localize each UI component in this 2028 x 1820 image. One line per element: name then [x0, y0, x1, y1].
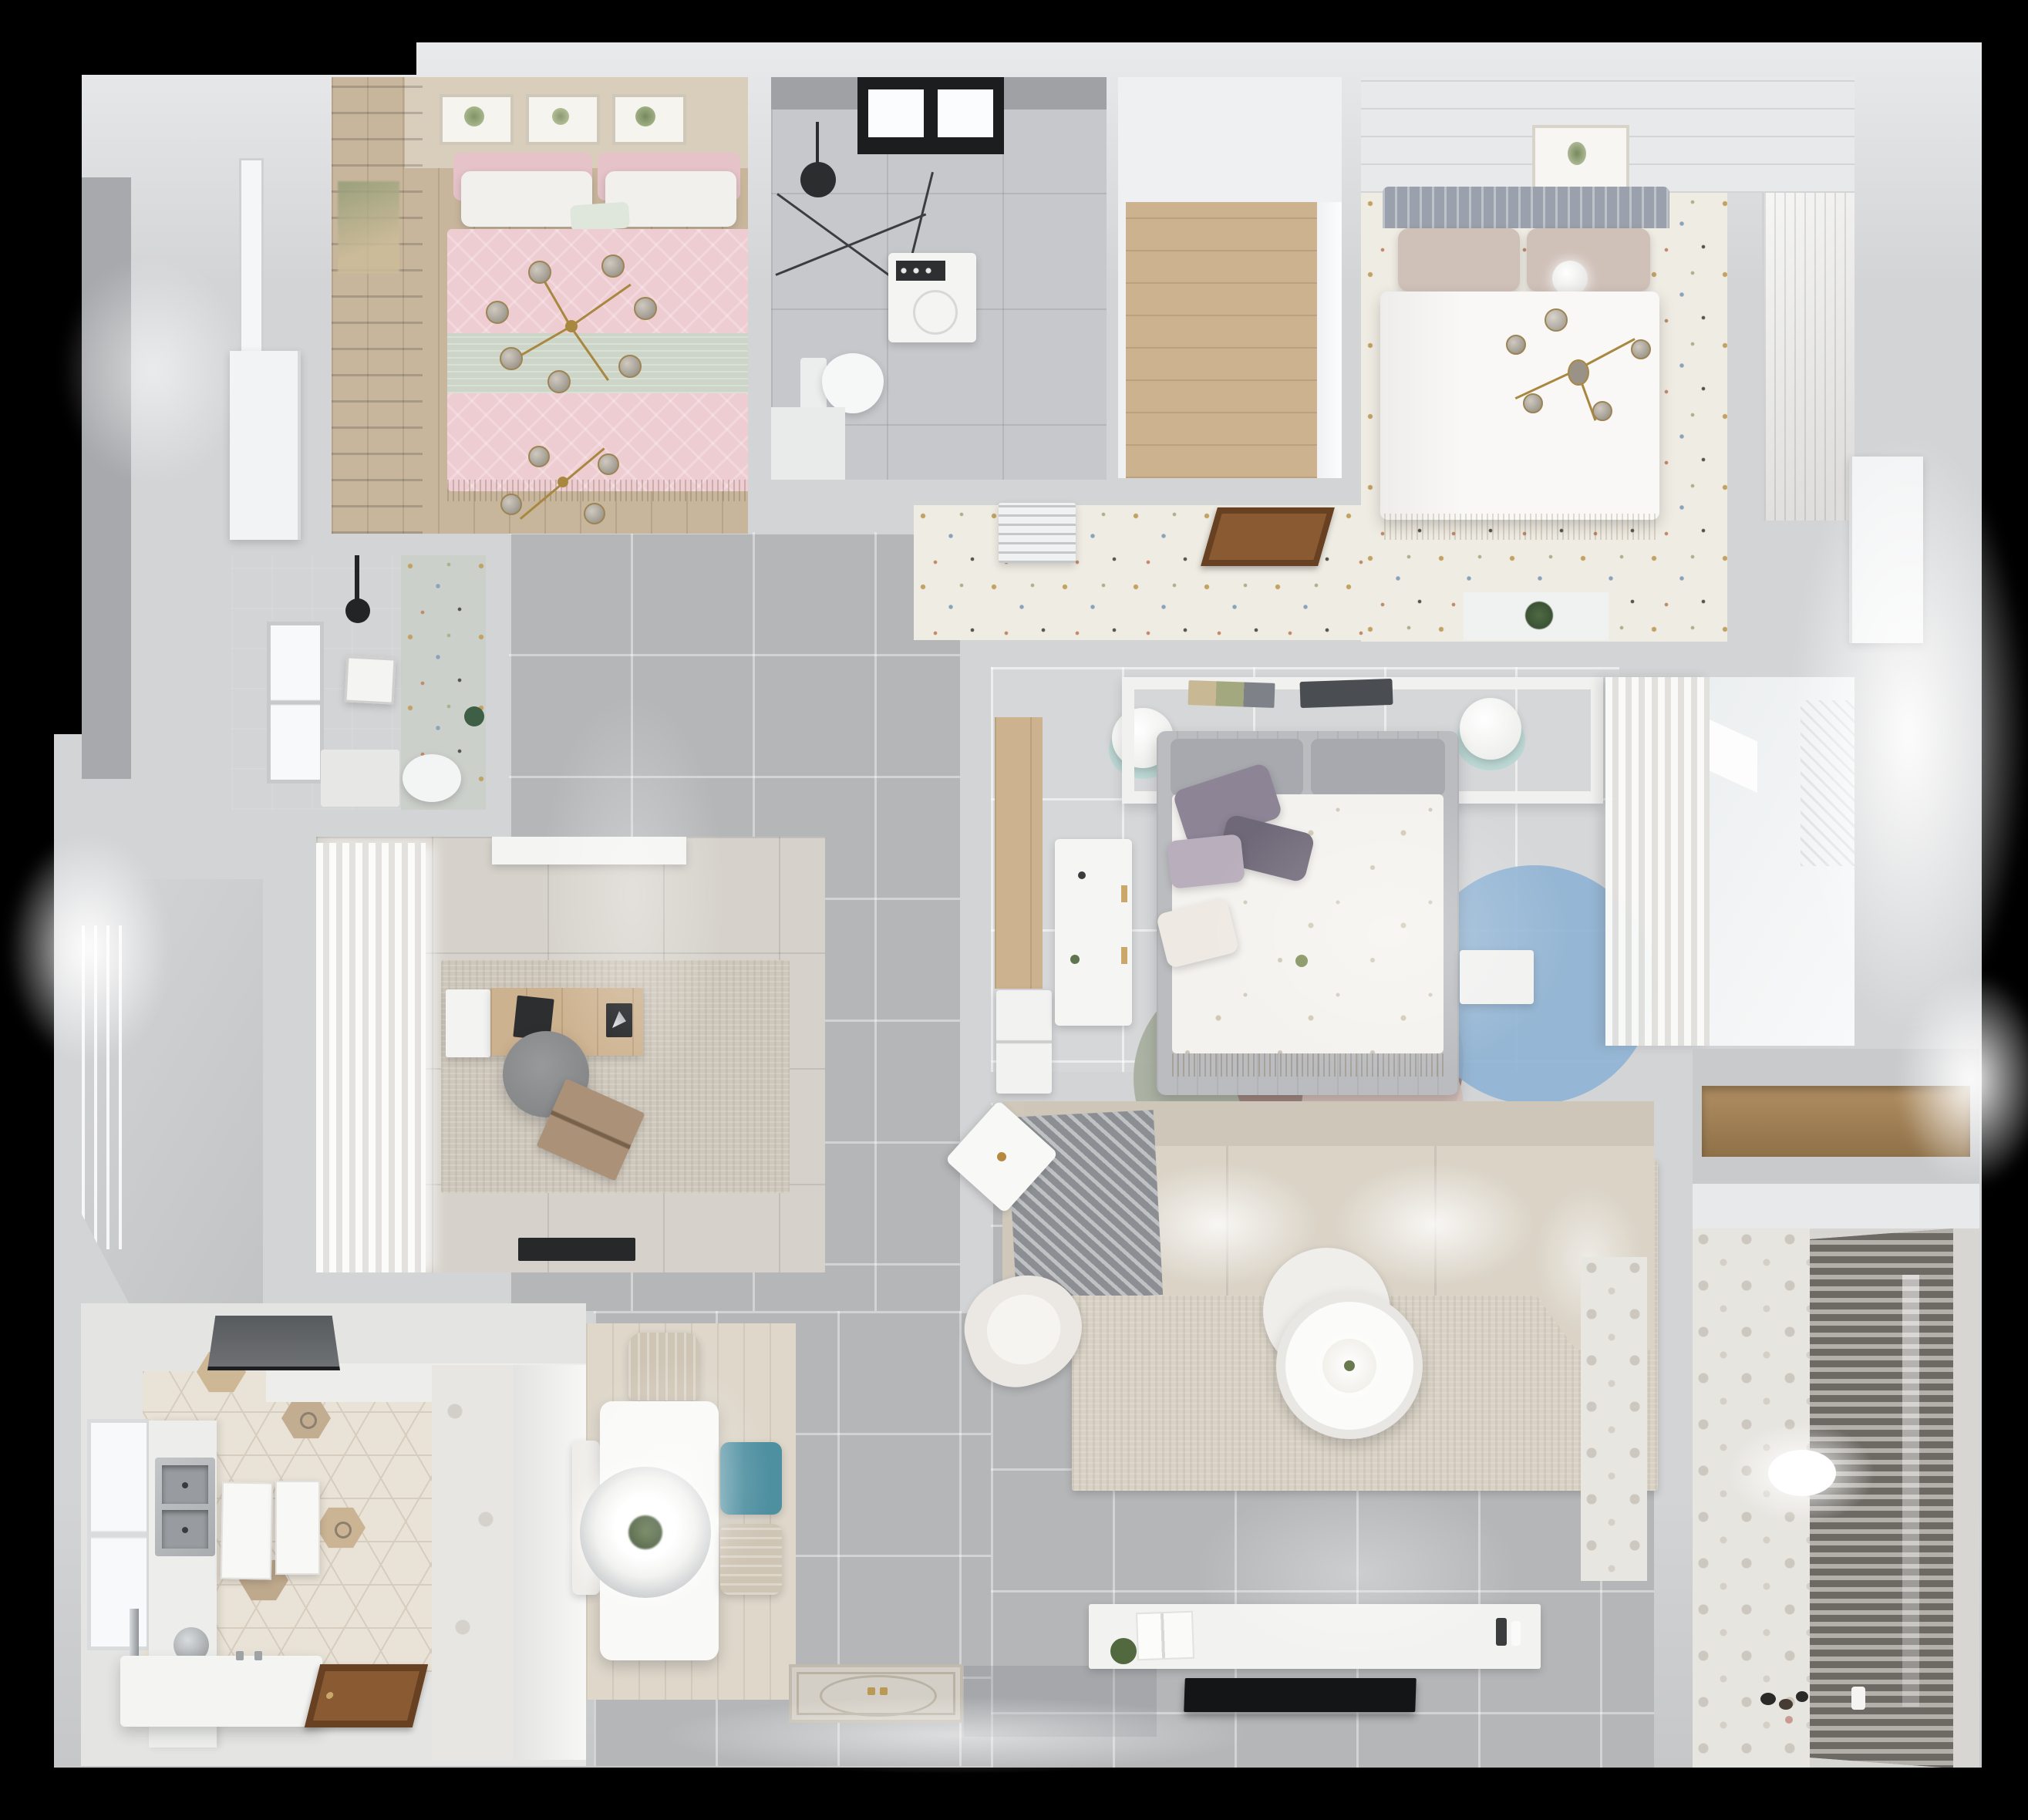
oval-lamp	[1768, 1450, 1836, 1496]
chandelier-bulb	[528, 446, 550, 467]
tv-panel	[1184, 1678, 1417, 1712]
plant	[1525, 602, 1553, 629]
white-panel	[221, 1481, 273, 1579]
room-bathroom-top	[771, 77, 1107, 480]
shower-pipe	[355, 555, 359, 603]
closet-corner-panel	[1710, 720, 1757, 793]
chandelier-bulb	[598, 453, 619, 475]
chandelier-bulb	[500, 494, 522, 515]
room-balcony	[1693, 1184, 1979, 1768]
plant-centerpiece	[628, 1515, 662, 1549]
master-bed	[1157, 731, 1459, 1095]
patterned-tile-wall	[1693, 1228, 1810, 1768]
dining-chair-teal	[720, 1442, 782, 1515]
louver-blinds	[1810, 1228, 1953, 1768]
chandelier-bulb	[1523, 393, 1543, 413]
shower-arm	[816, 122, 819, 167]
slatted-headboard	[1383, 187, 1669, 228]
olive-accent	[1295, 955, 1308, 967]
louver-stripes	[1801, 700, 1855, 866]
gray-pillow	[1311, 739, 1445, 796]
sheer-curtain-master	[1605, 677, 1710, 1046]
toilet-bowl	[403, 754, 461, 802]
walk-in-closet	[1710, 677, 1855, 1046]
wall-band	[1693, 1184, 1979, 1228]
toy-pink	[1785, 1716, 1793, 1724]
dining-chair-beige	[628, 1333, 699, 1400]
room-bedroom-white	[1361, 77, 1855, 642]
double-steel-sink	[155, 1458, 215, 1556]
white-desk	[1055, 839, 1132, 1026]
tv-console	[1089, 1604, 1541, 1669]
chandelier-hub	[558, 477, 568, 487]
gold-handle	[1121, 885, 1127, 902]
black-notch-left	[54, 75, 82, 734]
armchair-seat	[978, 1285, 1070, 1373]
window	[267, 622, 324, 784]
shoe	[1760, 1693, 1776, 1705]
floorplan-render	[0, 0, 2028, 1820]
valance	[492, 837, 686, 865]
white-door-leaf	[230, 351, 301, 540]
sink-basin	[162, 1510, 208, 1549]
bed-fringe	[1172, 1053, 1444, 1077]
chandelier-bulb	[1545, 308, 1568, 332]
table-plant	[1344, 1360, 1355, 1371]
plant-pot	[1110, 1638, 1137, 1664]
plant	[464, 706, 484, 726]
tap	[236, 1651, 244, 1660]
chandelier-bulb	[1631, 339, 1651, 359]
art-plant-sketch	[635, 106, 655, 126]
mat-tassel-gold	[867, 1687, 875, 1695]
chandelier-bulb	[634, 297, 657, 320]
white-panel	[275, 1481, 320, 1575]
chandelier-bulb	[486, 301, 509, 324]
room-bathroom-dark	[231, 555, 486, 810]
plant-ledge	[1464, 592, 1609, 640]
blanket-fringe	[1384, 514, 1656, 540]
vanity	[321, 750, 399, 807]
pantry-column	[432, 1365, 514, 1760]
outer-shadow-band	[82, 177, 131, 779]
gold-sputnik-chandelier	[486, 254, 655, 401]
art-frame	[344, 656, 396, 704]
wall-art-frame	[526, 94, 600, 145]
bottle-dark	[1496, 1618, 1507, 1646]
sofa-seam	[1434, 1146, 1437, 1296]
chandelier-hub	[1568, 359, 1589, 386]
gold-sputnik-chandelier	[1500, 308, 1654, 432]
shower-head	[345, 598, 370, 623]
open-wood-door	[1201, 507, 1335, 566]
desk-plant	[1070, 955, 1080, 964]
balcony-storage-niche	[1693, 1049, 1979, 1184]
gold-handle	[1121, 947, 1127, 964]
art-plant-sketch	[552, 108, 569, 125]
garden-glimpse	[338, 181, 399, 274]
side-platform	[82, 879, 263, 1303]
chandelier-bulb	[547, 370, 571, 393]
shoe	[1779, 1699, 1793, 1710]
table-center	[1322, 1339, 1376, 1393]
decor-frames	[1136, 1611, 1194, 1661]
books	[1187, 680, 1275, 708]
bottle-white	[1851, 1687, 1865, 1710]
chandelier-bulb	[601, 254, 625, 278]
louver-wardrobe	[1762, 193, 1855, 521]
black-doormat	[518, 1238, 635, 1261]
roman-shade-curtain	[332, 77, 423, 534]
hex-motif	[335, 1522, 352, 1539]
room-storage	[1118, 77, 1342, 478]
chandelier-hub	[565, 320, 578, 332]
window-pane	[938, 89, 993, 137]
island-counter	[120, 1656, 322, 1727]
dark-folio	[1299, 679, 1393, 708]
wall-art-frame	[440, 94, 514, 145]
desk-item-dark	[1078, 871, 1086, 879]
window-pane	[868, 89, 924, 137]
open-door-white	[1849, 457, 1923, 643]
chandelier-arm	[520, 482, 564, 520]
book-feather	[612, 1011, 626, 1028]
round-coffee-table	[1257, 1248, 1427, 1437]
room-study	[316, 837, 825, 1272]
radiator-vent	[999, 503, 1076, 563]
blind-light-slit	[1902, 1275, 1919, 1707]
chandelier-bulb	[618, 355, 642, 378]
chandelier-arm	[570, 284, 632, 328]
sofa-seam	[1226, 1146, 1228, 1296]
storage-shelf-wood	[1702, 1086, 1970, 1157]
dark-window	[857, 77, 1004, 154]
wood-plank-floor	[1126, 202, 1317, 478]
drain	[182, 1482, 188, 1488]
control-panel	[896, 261, 945, 281]
wall-art-frame	[612, 94, 686, 145]
chandelier-bulb	[528, 261, 551, 284]
chandelier-bulb	[1506, 335, 1526, 355]
chandelier-bulb	[584, 503, 605, 524]
washer-door-ring	[913, 290, 958, 335]
tap	[254, 1651, 262, 1660]
chandelier-bulb	[500, 347, 523, 370]
shower-head	[800, 162, 836, 197]
ledge	[771, 407, 845, 480]
room-bedroom-pink	[332, 77, 748, 534]
dresser	[996, 990, 1052, 1094]
railing	[82, 925, 128, 1249]
art-frame	[1532, 125, 1629, 191]
sink-basin	[162, 1465, 208, 1504]
drain	[182, 1527, 188, 1533]
desk-cabinet	[446, 989, 490, 1057]
hex-motif	[300, 1412, 317, 1429]
art-plant-sketch	[1568, 142, 1586, 165]
ornate-entry-mat	[789, 1664, 963, 1723]
wall-glow	[1316, 202, 1342, 478]
door-handle	[325, 1692, 334, 1699]
toilet-bowl	[822, 353, 884, 413]
dining-chair-beige	[720, 1524, 782, 1595]
mat-tassel-gold	[880, 1687, 888, 1695]
desk-book	[606, 1003, 632, 1037]
pendant-lamp	[580, 1467, 711, 1598]
lilac-pillow	[1167, 834, 1245, 889]
closet-wood-strip	[995, 717, 1043, 989]
chandelier-bulb	[1592, 401, 1612, 421]
mat-medallion	[820, 1675, 937, 1717]
window	[87, 1419, 150, 1650]
washing-machine-cabinet	[888, 253, 976, 342]
range-hood	[207, 1316, 340, 1370]
art-plant-sketch	[464, 106, 484, 126]
gold-decor	[995, 1151, 1009, 1164]
shoe	[1796, 1691, 1808, 1702]
wood-door	[305, 1664, 428, 1727]
chandelier-arm	[570, 326, 609, 381]
mint-accent-pillow	[570, 201, 630, 231]
taupe-pillow	[1527, 228, 1650, 292]
pattern-tile-strip	[1581, 1257, 1647, 1581]
room-kitchen	[81, 1303, 586, 1766]
taupe-pillow	[1398, 228, 1520, 292]
bottle-white	[1511, 1621, 1521, 1646]
black-notch-top-left	[54, 42, 416, 75]
chrome-pole-tap	[130, 1609, 139, 1658]
sheer-curtains	[316, 843, 426, 1272]
gold-sputnik-chandelier-lower	[497, 440, 628, 528]
bedside-table	[1460, 950, 1534, 1004]
floor-shadow-panel	[964, 1666, 1157, 1737]
